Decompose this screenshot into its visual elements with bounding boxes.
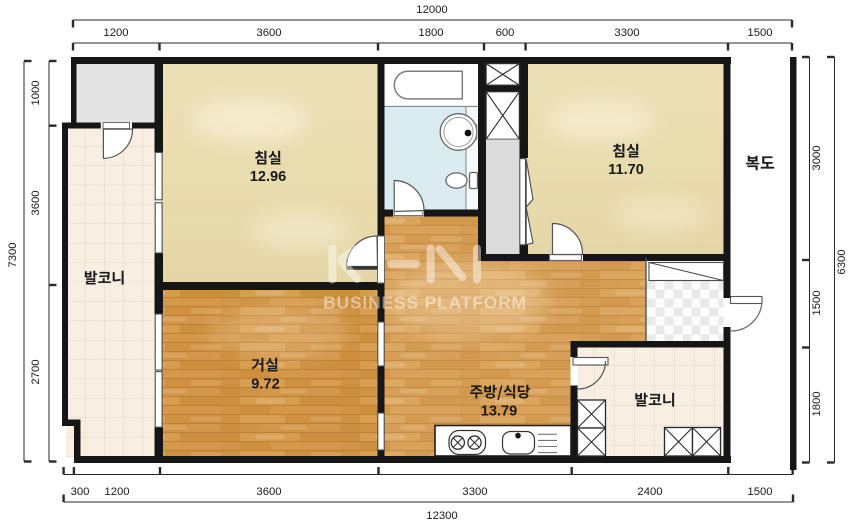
- svg-text:1500: 1500: [811, 290, 823, 315]
- svg-text:300: 300: [71, 486, 90, 498]
- svg-text:7300: 7300: [7, 242, 19, 267]
- svg-text:3600: 3600: [30, 190, 42, 215]
- svg-text:2400: 2400: [637, 486, 662, 498]
- svg-text:1800: 1800: [811, 391, 823, 416]
- svg-text:11.70: 11.70: [608, 162, 644, 178]
- svg-text:12.96: 12.96: [250, 169, 287, 185]
- svg-text:12000: 12000: [416, 4, 447, 16]
- svg-text:2700: 2700: [30, 359, 42, 384]
- svg-text:9.72: 9.72: [251, 377, 279, 393]
- svg-text:1000: 1000: [30, 80, 42, 105]
- svg-text:600: 600: [496, 27, 515, 39]
- svg-text:BUSINESS PLATFORM: BUSINESS PLATFORM: [323, 293, 527, 313]
- svg-text:3300: 3300: [462, 486, 487, 498]
- svg-text:1500: 1500: [747, 486, 772, 498]
- svg-text:6300: 6300: [836, 249, 848, 274]
- svg-text:3600: 3600: [256, 27, 281, 39]
- svg-text:3600: 3600: [256, 486, 281, 498]
- svg-text:1200: 1200: [104, 486, 129, 498]
- svg-text:13.79: 13.79: [481, 404, 518, 420]
- svg-text:1200: 1200: [103, 27, 128, 39]
- svg-text:1500: 1500: [747, 27, 772, 39]
- svg-text:12300: 12300: [426, 510, 457, 522]
- svg-text:3300: 3300: [614, 27, 639, 39]
- svg-text:3000: 3000: [811, 145, 823, 170]
- svg-text:1800: 1800: [418, 27, 443, 39]
